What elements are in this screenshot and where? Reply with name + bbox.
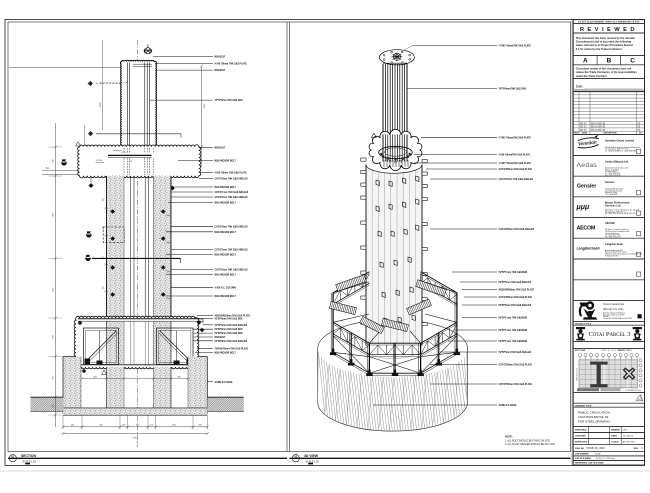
svg-text:1998: 1998 [100,102,102,108]
svg-text:4 500 *50mmTHK G&S PLATE: 4 500 *50mmTHK G&S PLATE [499,154,531,157]
svg-text:(Typ): (Typ) [166,242,170,244]
svg-text:5.4 for action by the Tra: 5.4 for action by the Trade Contractor. [576,47,623,51]
svg-text:LWC: LWC [623,430,628,432]
svg-text:▌▌▌▌ ▌▌▌▌▌▌▌: ▌▌▌▌ ▌▌▌▌▌▌▌ [591,122,606,125]
svg-text:Roppongi Hills Mori Tower: Roppongi Hills Mori Tower [605,188,624,190]
svg-text:DATE: DATE [611,435,617,438]
svg-text:Date :: Date : [576,85,585,89]
svg-text:2. ALL FILLET WELDED SHOULD B: 2. ALL FILLET WELDED SHOULD BE 3mm THK. [505,443,556,446]
svg-text:M16 BOLT: M16 BOLT [215,148,227,150]
svg-text:50*50*5mm THK G&S ANGLES: 50*50*5mm THK G&S ANGLES [499,281,532,284]
svg-text:FOUNTAIN DETAIL 09: FOUNTAIN DETAIL 09 [578,415,609,419]
svg-text:FOR STEEL DRAWING: FOR STEEL DRAWING [578,420,610,424]
svg-text:▌▌▌▌ ▌▌▌▌▌▌▌: ▌▌▌▌ ▌▌▌▌▌▌▌ [591,125,606,128]
svg-text:KEY PLAN: KEY PLAN [575,349,586,352]
svg-text:50*50*5 mm THK G&S/SHS: 50*50*5 mm THK G&S/SHS [499,341,528,343]
svg-text:(4 500): (4 500) [96,160,102,162]
svg-text:LangdonSeah: LangdonSeah [577,247,600,251]
svg-text:4 500 R.C. COLUMN: 4 500 R.C. COLUMN [215,287,237,290]
svg-text:ANCHOR/50mm THK G&S PLATE: ANCHOR/50mm THK G&S PLATE [215,314,251,317]
svg-text:5150B_FD_0909.dwg: 5150B_FD_0909.dwg [596,458,615,460]
svg-text:10-1 Roppongi 6-chome: 10-1 Roppongi 6-chome [605,190,622,192]
svg-text:JOB NUMBER: JOB NUMBER [575,454,589,456]
svg-text:Tel : (853) 2878 6193: Tel : (853) 2878 6193 [605,173,620,175]
svg-text:(Typ): (Typ) [166,215,170,217]
svg-text:50*50*5 mm THK G&S/SHS: 50*50*5 mm THK G&S/SHS [499,330,528,332]
svg-text:PARCEL 1 OF 3: PARCEL 1 OF 3 [618,349,632,352]
svg-text:AECOM: AECOM [577,226,596,232]
svg-text:50*50*5 mm THK G&S/SHS: 50*50*5 mm THK G&S/SHS [499,318,528,320]
svg-text:SECTION: SECTION [21,454,37,458]
svg-text:Consultants(s) and is accor: Consultants(s) and is accorded the follo… [576,40,632,44]
svg-text:(Macau) CO. LTD.: (Macau) CO. LTD. [603,308,624,311]
svg-text:M16 ANCHOR BOLT: M16 ANCHOR BOLT [215,159,237,162]
svg-text:50*50*5 mm THK G&S/SHS: 50*50*5 mm THK G&S/SHS [499,272,528,274]
svg-text:COT/OTmm THK G&S ANGLES: COT/OTmm THK G&S ANGLES [215,178,249,181]
svg-text:Consultant review of this: Consultant review of this document does … [576,67,632,71]
svg-text:(Typ): (Typ) [166,271,170,273]
svg-text:CHECKED: CHECKED [575,436,586,438]
svg-text:5792: 5792 [133,437,139,439]
svg-text:▌▌▌ ▌▌: ▌▌▌ ▌▌ [580,122,587,125]
svg-text:CAD FILE NAME :: CAD FILE NAME : [575,457,592,460]
svg-text:(Typ): (Typ) [104,291,108,293]
svg-text:4 500 *50mm THK G&S PLATE: 4 500 *50mm THK G&S PLATE [215,172,248,175]
svg-text:under the Trade Contract.: under the Trade Contract. [576,74,608,78]
svg-text:Tel : (853) 8118 8888 Fax : (: Tel : (853) 8118 8888 Fax : (853) 2888 8… [605,151,636,153]
svg-text:M16 ANCHOR BOLT: M16 ANCHOR BOLT [215,273,237,276]
svg-text:96: 96 [130,161,132,163]
svg-text:AS SHOWN: AS SHOWN [623,441,635,444]
svg-text:COT/OTmm THK G&S ANGLES: COT/OTmm THK G&S ANGLES [215,268,249,271]
svg-text:4 THK *50mmTHK G&S PLATE: 4 THK *50mmTHK G&S PLATE [499,44,532,47]
svg-text:21 andar, Macau: 21 andar, Macau [605,171,617,173]
svg-text:▌▌: ▌▌ [638,125,641,128]
svg-text:300: 300 [103,287,105,290]
svg-text:4 540 *50mm THK G&S PLATE: 4 540 *50mm THK G&S PLATE [215,63,248,66]
svg-text:Gensler: Gensler [577,184,596,190]
svg-text:50*50*6mm THK G&S ANGLES: 50*50*6mm THK G&S ANGLES [215,340,248,343]
svg-text:14-JUN-16: 14-JUN-16 [623,436,634,438]
svg-text:DESIGNED: DESIGNED [575,430,587,432]
svg-text:3D VIEW: 3D VIEW [304,454,319,458]
svg-text:ANCHOR/50mm THK G&S PLATE: ANCHOR/50mm THK G&S PLATE [499,289,535,292]
svg-text:B: B [607,58,612,65]
svg-text:M16 BOLT: M16 BOLT [215,57,227,59]
svg-text:M16 ANCHOR BOLT: M16 ANCHOR BOLT [215,254,237,257]
svg-text:M16 ANCHOR BOLT: M16 ANCHOR BOLT [215,295,237,298]
svg-text:COT/OT mm THK G&S ANGLES: COT/OT mm THK G&S ANGLES [215,191,249,194]
svg-text:μμμ: μμμ [576,204,590,211]
svg-text:P A R C E L 1 0 F 3: P A R C E L 1 0 F 3 [602,349,617,352]
svg-text:1556: 1556 [204,103,206,109]
svg-text:ACME R.C BASE: ACME R.C BASE [499,404,518,407]
svg-text:50*50*6mm THK G&S SHS: 50*50*6mm THK G&S SHS [215,329,244,331]
svg-text:F (853) 28 332 920: F (853) 28 332 920 [605,256,619,258]
svg-text:relieve the Trade Contracto: relieve the Trade Contractor of its resp… [576,70,638,74]
svg-text:(Typ): (Typ) [166,298,170,300]
svg-text:M16 ANCHOR BOLT: M16 ANCHOR BOLT [215,231,237,234]
svg-text:L 96 J: L 96 J [121,152,126,154]
svg-text:M16 ANCHOR BOLT: M16 ANCHOR BOLT [215,202,237,205]
svg-text:50*50*5mm THK G&S ANGLES: 50*50*5mm THK G&S ANGLES [499,351,532,354]
svg-text:M16 ANCHOR BOLT: M16 ANCHOR BOLT [215,351,237,354]
svg-text:50*50*6mm THK G&S SHS: 50*50*6mm THK G&S SHS [215,319,244,321]
svg-text:PUBLIC CIRCULATION: PUBLIC CIRCULATION [578,410,610,414]
svg-text:Venetian Orient Limited: Venetian Orient Limited [605,139,634,143]
svg-text:M16 ANCHOR BOLT: M16 ANCHOR BOLT [215,186,237,189]
svg-text:(Typ): (Typ) [104,235,108,237]
svg-text:1. ALL BOLT SHOULD BE FIXING: 1. ALL BOLT SHOULD BE FIXING ON SITE. [505,439,551,442]
svg-text:5150B_FD_0909: 5150B_FD_0909 [587,447,606,450]
svg-text:Tel : (852) 3922 9000: Tel : (852) 3922 9000 [605,235,620,237]
svg-text:5150B: 5150B [595,454,601,456]
svg-text:▌▌: ▌▌ [638,122,641,125]
svg-text:REV: REV [634,448,639,450]
svg-text:PARCEL 1, OF 3: PARCEL 1, OF 3 [576,368,579,381]
svg-text:(Typ): (Typ) [104,208,108,210]
svg-text:Fax : (852) 3922 9797: Fax : (852) 3922 9797 [605,237,621,239]
svg-text:COT/OT50mm THK G&S PLATE: COT/OT50mm THK G&S PLATE [499,168,533,171]
svg-text:status referred to in Pro: status referred to in Project Procedure … [576,43,634,47]
svg-text:50*50*6mm THK G&S ANGLES: 50*50*6mm THK G&S ANGLES [215,324,248,327]
svg-text:Gensler: Gensler [605,180,615,184]
svg-text:COT/OTmm THK G&S ANGLES: COT/OTmm THK G&S ANGLES [215,249,249,252]
svg-text:This document has been rev: This document has been revised by the re… [576,36,635,40]
svg-text:C: C [630,58,635,65]
svg-text:COT/OT50mm THK G&S PLATE: COT/OT50mm THK G&S PLATE [499,364,533,367]
svg-text:DWG NO: DWG NO [575,448,585,450]
svg-text:FOUNTAIN NO. 09: FOUNTAIN NO. 09 [626,389,641,392]
svg-text:T 81.3.6746.8000: T 81.3.6746.8000 [605,194,618,196]
svg-text:China Law Building: China Law Building [605,169,619,171]
svg-text:M16 BOLT: M16 BOLT [215,70,227,72]
svg-text:COT/OT5mm THK G&S ANGLES: COT/OT5mm THK G&S ANGLES [499,178,534,181]
svg-text:DRAWN: DRAWN [611,429,620,432]
svg-text:COTAI PARCEL 3: COTAI PARCEL 3 [588,331,631,338]
svg-text:4 THK *50mmTHK G&S PLATE: 4 THK *50mmTHK G&S PLATE [499,162,532,165]
svg-text:▌▌: ▌▌ [638,128,641,131]
svg-text:Fax : (853) 2878 6190: Fax : (853) 2878 6190 [605,175,621,177]
svg-text:REFERENCE CAD FILE NAME: REFERENCE CAD FILE NAME [575,462,604,465]
svg-text:COT/OT50mm THK G&S PLATE: COT/OT50mm THK G&S PLATE [499,383,533,386]
svg-text:TOP/50*50mm THK G&S PLATE: TOP/50*50mm THK G&S PLATE [215,348,249,351]
svg-text:50*50*6mm THK G&S SHS: 50*50*6mm THK G&S SHS [215,333,244,335]
svg-text:Yadea Construction: Yadea Construction [603,303,625,306]
svg-text:NOTE:: NOTE: [505,436,513,439]
svg-text:C: C [641,447,643,450]
svg-text:Aedas (Macau) Ltd.: Aedas (Macau) Ltd. [605,159,629,163]
svg-text:M16 BOLT: M16 BOLT [215,337,227,339]
svg-text:Λedas: Λedas [577,162,598,169]
svg-text:A: A [583,58,588,65]
svg-text:70*70*6mm THK G&S SHS: 70*70*6mm THK G&S SHS [215,100,244,102]
svg-text:(Typ): (Typ) [45,168,50,170]
svg-text:ACME R.C BASE: ACME R.C BASE [215,381,234,384]
svg-text:AECOM: AECOM [605,221,615,225]
svg-text:▌▌▌ ▌▌: ▌▌▌ ▌▌ [580,125,587,128]
svg-text:▌▌▌ ▌▌: ▌▌▌ ▌▌ [580,128,587,131]
svg-text:APPROVED: APPROVED [575,441,588,444]
svg-text:Langdon Seah: Langdon Seah [605,242,623,246]
svg-text:COT/OTmm THK G&S ANGLES: COT/OTmm THK G&S ANGLES [215,196,249,199]
svg-text:Services Ltd.: Services Ltd. [605,203,621,207]
svg-text:COT/OTmm THK G&S ANGLES: COT/OTmm THK G&S ANGLES [215,225,249,228]
svg-text:Macau Landmark ICBC Tower,: Macau Landmark ICBC Tower, [605,252,627,254]
svg-text:DRAWING TITLE: DRAWING TITLE [575,404,592,407]
svg-text:COT/OT50mm THK G&S PLATE: COT/OT50mm THK G&S PLATE [499,296,533,299]
svg-text:▌▌▌▌ ▌▌▌▌▌▌▌: ▌▌▌▌ ▌▌▌▌▌▌▌ [591,128,606,131]
svg-text:Tel : (853) 2870 3118 Fax :: Tel : (853) 2870 3118 Fax : (853) 2870 3… [605,213,636,215]
svg-text:(Typ): (Typ) [104,264,108,266]
svg-text:70*70*6mmTHK G&S SHS: 70*70*6mmTHK G&S SHS [499,89,527,91]
svg-text:4 THK *50mmTHK G&S PLATE: 4 THK *50mmTHK G&S PLATE [499,137,532,140]
svg-text:SCALE: SCALE [611,441,619,444]
svg-text:COT/OT50mm THK G&S ANGLES: COT/OT50mm THK G&S ANGLES [499,228,535,231]
svg-text:300: 300 [103,199,105,202]
svg-text:50*50*5mm THK G&S ANGLES: 50*50*5mm THK G&S ANGLES [499,304,532,307]
svg-text:REVIEWED: REVIEWED [580,27,638,33]
